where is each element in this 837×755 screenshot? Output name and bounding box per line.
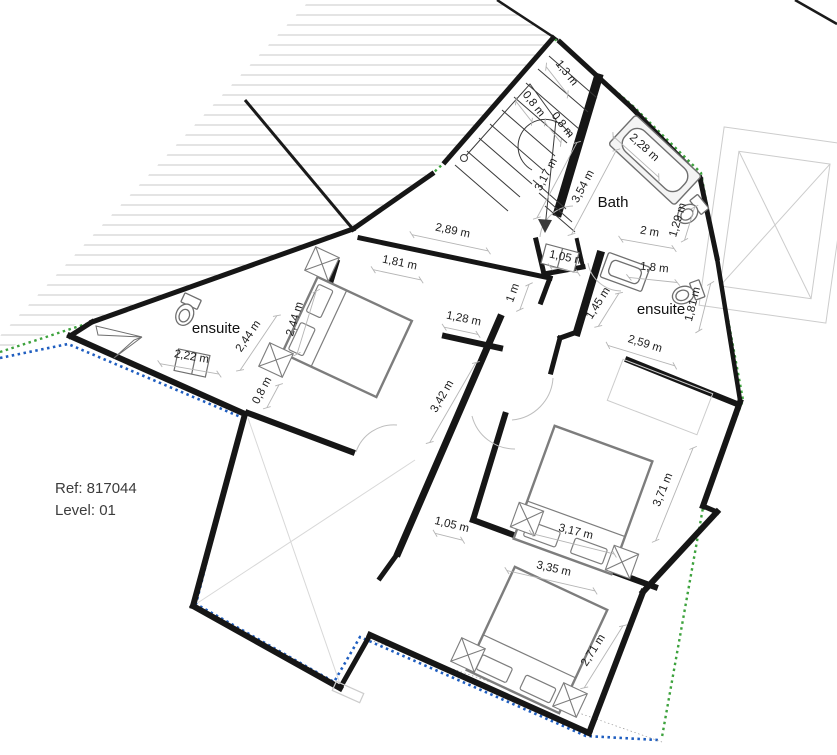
floorplan-page: Bathensuiteensuite1,3 m0,8 m0,8 m3,17 m3… [0,0,837,755]
stair-direction-arrow [538,219,552,233]
dimension-label: 1,28 m [445,310,482,329]
dimension-label: 2,59 m [626,333,663,355]
floorplan-drawing: Bathensuiteensuite1,3 m0,8 m0,8 m3,17 m3… [0,0,837,755]
room-label: Bath [598,194,629,211]
dimension-label: 0,8 m [549,110,576,140]
dimension-label: 1,81 m [381,254,418,273]
dimension-label: 2 m [639,224,660,239]
room-label: ensuite [192,320,240,337]
dimension-label: 2,89 m [434,222,471,241]
dimension-label: 0,8 m [250,375,274,406]
skylight-outline [699,127,837,323]
dimension-label: 3,42 m [428,378,456,414]
dimension-label: 3,71 m [651,471,675,508]
bed-left-bedroom [282,277,412,397]
dimension-label: 1 m [504,282,522,304]
room-label: ensuite [637,301,685,318]
level-number: Level: 01 [55,500,137,522]
dimension-label: 1,05 m [433,515,470,535]
dimension-label: 0,8 m [520,89,547,119]
dimension-label: 3,17 m [533,156,560,193]
dimension-label: 3,35 m [535,559,572,579]
roof-hatching [0,0,558,350]
ref-number: Ref: 817044 [55,478,137,500]
plan-reference-block: Ref: 817044 Level: 01 [55,478,137,522]
dimension-line [619,236,677,252]
dimension-label: 1,3 m [553,58,580,88]
